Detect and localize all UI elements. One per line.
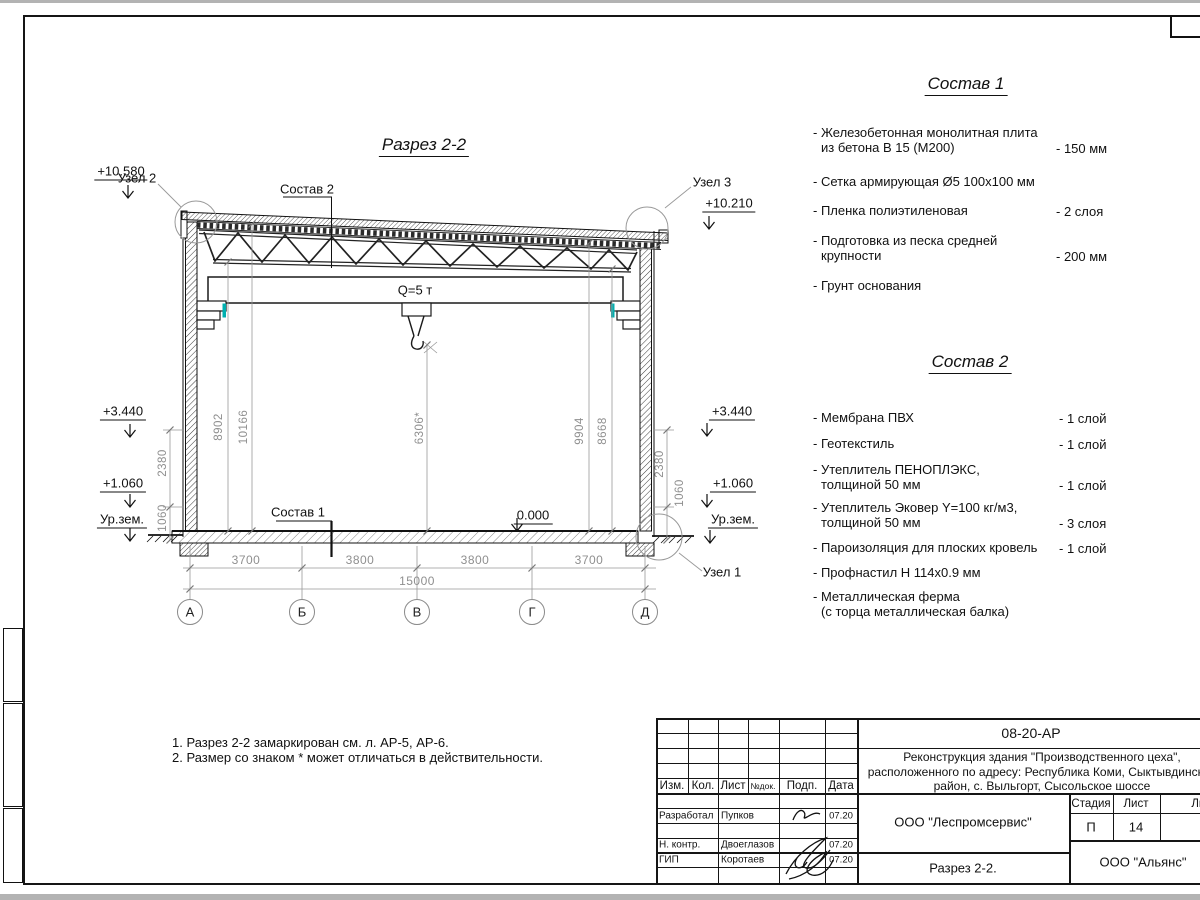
sostav2-item-7: - Металлическая ферма (с торца металличе…	[813, 590, 1009, 620]
tb-sheet-value: 14	[1129, 820, 1143, 835]
dim-1060-left: 1060	[157, 504, 169, 532]
tb-col-data: Дата	[828, 780, 853, 792]
tb-col-izm: Изм.	[660, 780, 685, 792]
floor-and-ground	[147, 531, 694, 556]
tb-sheets-header: Листов	[1191, 798, 1200, 810]
dim-3800-1: 3800	[346, 553, 375, 567]
margin-box-1	[3, 628, 23, 702]
sostav2-value-3: - 1 слой	[1059, 478, 1107, 493]
tb-stage-value: П	[1086, 820, 1095, 835]
tb-org2: ООО "Альянс"	[1100, 855, 1187, 870]
elevation-right-3440: +3.440	[709, 404, 755, 421]
elevation-left-1060: +1.060	[100, 476, 146, 493]
tb-role-3: ГИП	[659, 855, 679, 866]
sostav1-item-5: - Грунт основания	[813, 279, 921, 294]
tb-role-1: Разработал	[659, 811, 713, 822]
frame-top	[23, 15, 1200, 17]
drawing-sheet: Разрез 2-2 Узел 2 Узел 3 Узел 1 Состав 2…	[0, 0, 1200, 900]
tb-name-1: Пупков	[721, 811, 754, 822]
sostav2-item-2: - Геотекстиль	[813, 437, 894, 452]
sostav2-item-5: - Пароизоляция для плоских кровель	[813, 541, 1037, 556]
sostav2-item-4: - Утеплитель Эковер Y=100 кг/м3, толщино…	[813, 501, 1017, 531]
tb-name-2: Двоеглазов	[721, 840, 774, 851]
axis-label-g: Г	[528, 605, 535, 620]
sostav2-value-4: - 3 слоя	[1059, 516, 1106, 531]
dim-2380-right: 2380	[654, 450, 666, 478]
sostav1-item-2: - Сетка армирующая Ø5 100х100 мм	[813, 175, 1035, 190]
elevation-right-top: +10.210	[702, 196, 755, 213]
elevation-left-ground: Ур.зем.	[97, 512, 147, 529]
axis-label-b: Б	[298, 605, 307, 620]
sostav2-value-1: - 1 слой	[1059, 411, 1107, 426]
callout-uzel3: Узел 3	[693, 175, 732, 190]
dim-3700-2: 3700	[575, 553, 604, 567]
tb-date-1: 07.20	[829, 811, 853, 822]
dim-3800-2: 3800	[461, 553, 490, 567]
sostav2-title: Состав 2	[929, 352, 1012, 374]
sostav1-value-1: - 150 мм	[1056, 141, 1107, 156]
tb-col-kol: Кол.	[692, 780, 715, 792]
corner-box	[1170, 15, 1200, 38]
dim-10166: 10166	[238, 410, 250, 444]
tb-date-2: 07.20	[829, 840, 853, 851]
margin-box-3	[3, 808, 23, 883]
crane-rail-mark-right	[611, 304, 615, 318]
frame-bottom	[23, 883, 1200, 885]
dim-15000: 15000	[399, 574, 435, 588]
sostav2-value-5: - 1 слой	[1059, 541, 1107, 556]
axis-label-v: В	[413, 605, 422, 620]
dim-6306: 6306*	[414, 412, 426, 445]
tb-date-3: 07.20	[829, 855, 853, 866]
section-title: Разрез 2-2	[379, 135, 469, 157]
tb-sheet-header: Лист	[1124, 798, 1149, 810]
dim-8902: 8902	[213, 413, 225, 441]
crane-capacity-label: Q=5 т	[398, 283, 433, 298]
tb-stage-header: Стадия	[1071, 798, 1110, 810]
page-edge-top	[0, 0, 1200, 3]
elevation-right-ground: Ур.зем.	[708, 512, 758, 529]
tb-role-2: Н. контр.	[659, 840, 700, 851]
sostav1-item-1: - Железобетонная монолитная плита из бет…	[813, 126, 1038, 156]
callout-sostav2: Состав 2	[280, 182, 334, 197]
elevation-left-top: +10.580	[94, 164, 147, 181]
sostav2-value-2: - 1 слой	[1059, 437, 1107, 452]
elevation-right-1060: +1.060	[710, 476, 756, 493]
margin-box-2	[3, 703, 23, 807]
tb-name-3: Коротаев	[721, 855, 764, 866]
sostav1-value-4: - 200 мм	[1056, 249, 1107, 264]
dim-9904: 9904	[574, 417, 586, 445]
crane-rail-mark-left	[223, 304, 227, 318]
tb-col-ndok: №док.	[751, 781, 776, 791]
sostav1-value-3: - 2 слоя	[1056, 204, 1103, 219]
sostav2-item-3: - Утеплитель ПЕНОПЛЭКС, толщиной 50 мм	[813, 463, 980, 493]
sostav1-title: Состав 1	[925, 74, 1008, 96]
callout-sostav1: Состав 1	[271, 505, 325, 520]
tb-project-name: Реконструкция здания "Производственного …	[862, 750, 1200, 794]
dim-8668: 8668	[597, 417, 609, 445]
sostav1-item-3: - Пленка полиэтиленовая	[813, 204, 968, 219]
axis-label-d: Д	[641, 605, 650, 620]
notes: 1. Разрез 2-2 замаркирован см. л. АР-5, …	[172, 735, 543, 766]
sostav1-item-4: - Подготовка из песка средней крупности	[813, 234, 997, 264]
tb-doc-number: 08-20-АР	[1001, 725, 1060, 741]
tb-org1: ООО "Леспромсервис"	[894, 815, 1032, 830]
frame-left	[23, 15, 25, 885]
tb-col-list: Лист	[721, 780, 746, 792]
page-edge-bottom	[0, 894, 1200, 900]
sostav2-item-6: - Профнастил Н 114х0.9 мм	[813, 566, 981, 581]
elevation-zero: 0.000	[514, 508, 553, 525]
dim-3700-1: 3700	[232, 553, 261, 567]
elevation-left-3440: +3.440	[100, 404, 146, 421]
axis-label-a: А	[186, 605, 195, 620]
dim-2380-left: 2380	[157, 449, 169, 477]
tb-col-podp: Подп.	[787, 780, 818, 792]
note-2: 2. Размер со знаком * может отличаться в…	[172, 750, 543, 765]
tb-drawing-title: Разрез 2-2.	[929, 861, 996, 876]
dim-1060-right: 1060	[674, 479, 686, 507]
sostav2-item-1: - Мембрана ПВХ	[813, 411, 914, 426]
callout-uzel1: Узел 1	[703, 565, 742, 580]
note-1: 1. Разрез 2-2 замаркирован см. л. АР-5, …	[172, 735, 543, 750]
